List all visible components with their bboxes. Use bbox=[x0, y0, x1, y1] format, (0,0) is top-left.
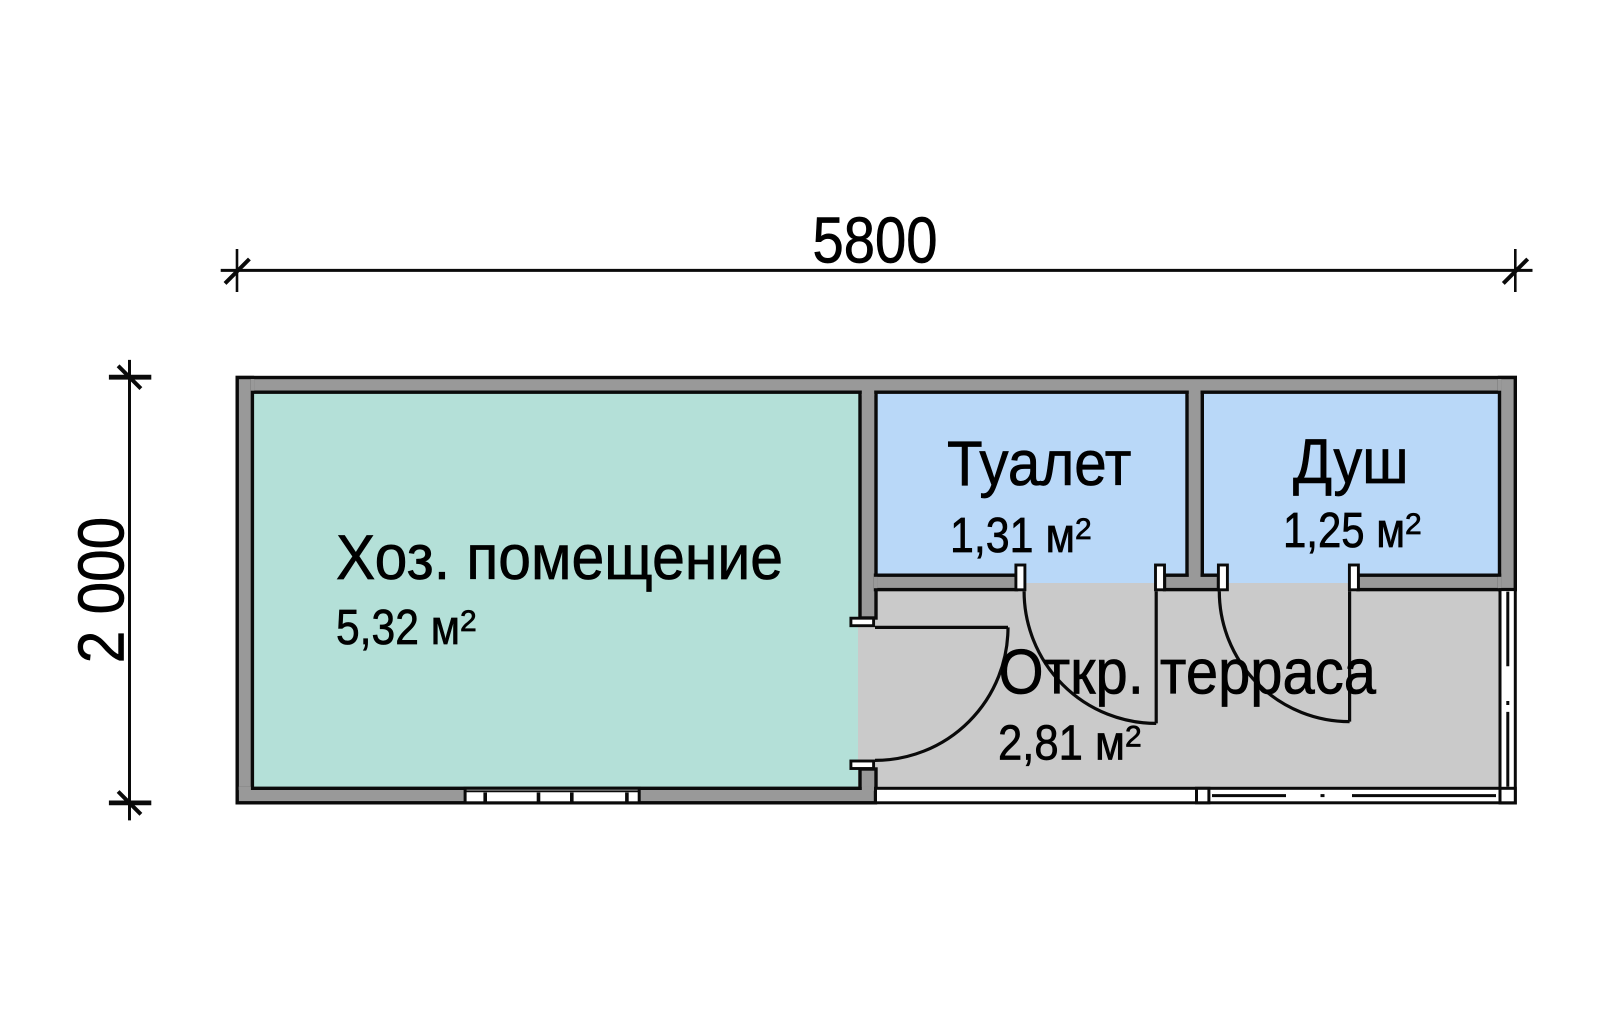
svg-text:2: 2 bbox=[1075, 513, 1092, 546]
svg-text:Туалет: Туалет bbox=[947, 429, 1132, 499]
svg-text:2,81 м: 2,81 м bbox=[998, 717, 1125, 771]
svg-text:2: 2 bbox=[1405, 508, 1422, 541]
svg-text:Душ: Душ bbox=[1293, 427, 1409, 497]
svg-text:1,31 м: 1,31 м bbox=[950, 509, 1075, 563]
svg-text:2: 2 bbox=[1125, 721, 1142, 754]
svg-text:1,25 м: 1,25 м bbox=[1283, 504, 1405, 558]
svg-text:Откр. терраса: Откр. терраса bbox=[999, 638, 1377, 708]
svg-text:Хоз. помещение: Хоз. помещение bbox=[336, 523, 783, 593]
svg-text:5800: 5800 bbox=[813, 204, 938, 277]
svg-text:2: 2 bbox=[460, 605, 477, 638]
svg-text:5,32 м: 5,32 м bbox=[336, 601, 460, 655]
svg-text:2 000: 2 000 bbox=[64, 517, 137, 663]
